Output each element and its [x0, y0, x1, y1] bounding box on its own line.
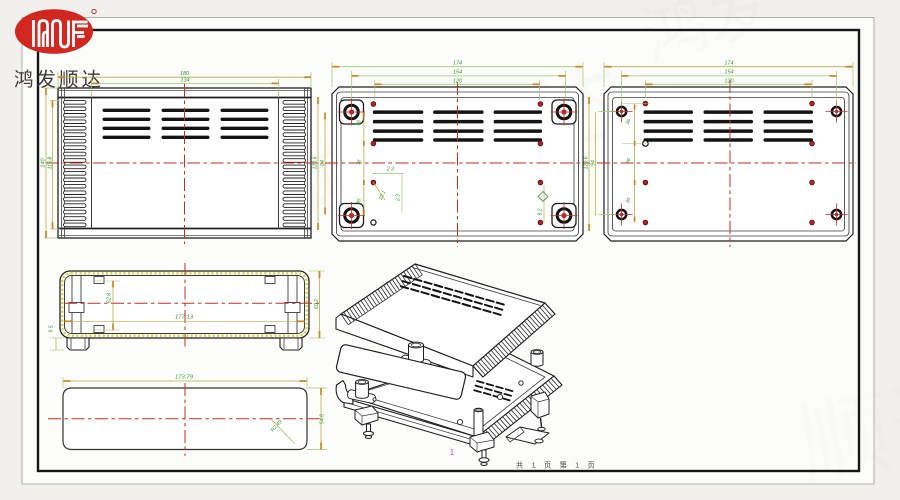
svg-text:54.6: 54.6 [320, 414, 326, 424]
svg-text:1: 1 [450, 448, 455, 457]
svg-text:共 1 页 第 1 页: 共 1 页 第 1 页 [516, 461, 598, 470]
svg-text:174: 174 [453, 60, 462, 66]
svg-text:9.2: 9.2 [538, 208, 544, 215]
svg-text:116.8: 116.8 [48, 157, 54, 170]
svg-text:134: 134 [180, 78, 189, 84]
svg-text:154: 154 [453, 70, 462, 76]
svg-text:120.6: 120.6 [313, 156, 319, 169]
svg-text:120: 120 [453, 78, 463, 84]
svg-text:120.6: 120.6 [584, 156, 590, 169]
svg-text:94: 94 [591, 160, 597, 166]
svg-text:62.8: 62.8 [107, 293, 113, 303]
svg-text:2.3: 2.3 [386, 167, 394, 173]
svg-text:2.3: 2.3 [396, 194, 402, 202]
svg-text:120: 120 [724, 78, 734, 84]
svg-text:173.79: 173.79 [175, 374, 194, 380]
svg-text:140: 140 [41, 157, 47, 167]
svg-text:154: 154 [724, 70, 733, 76]
svg-text:174: 174 [724, 60, 733, 66]
svg-text:180: 180 [180, 71, 190, 77]
svg-text:60.2: 60.2 [314, 299, 320, 309]
svg-text:177.13: 177.13 [175, 315, 194, 321]
svg-text:9.5: 9.5 [49, 325, 55, 332]
